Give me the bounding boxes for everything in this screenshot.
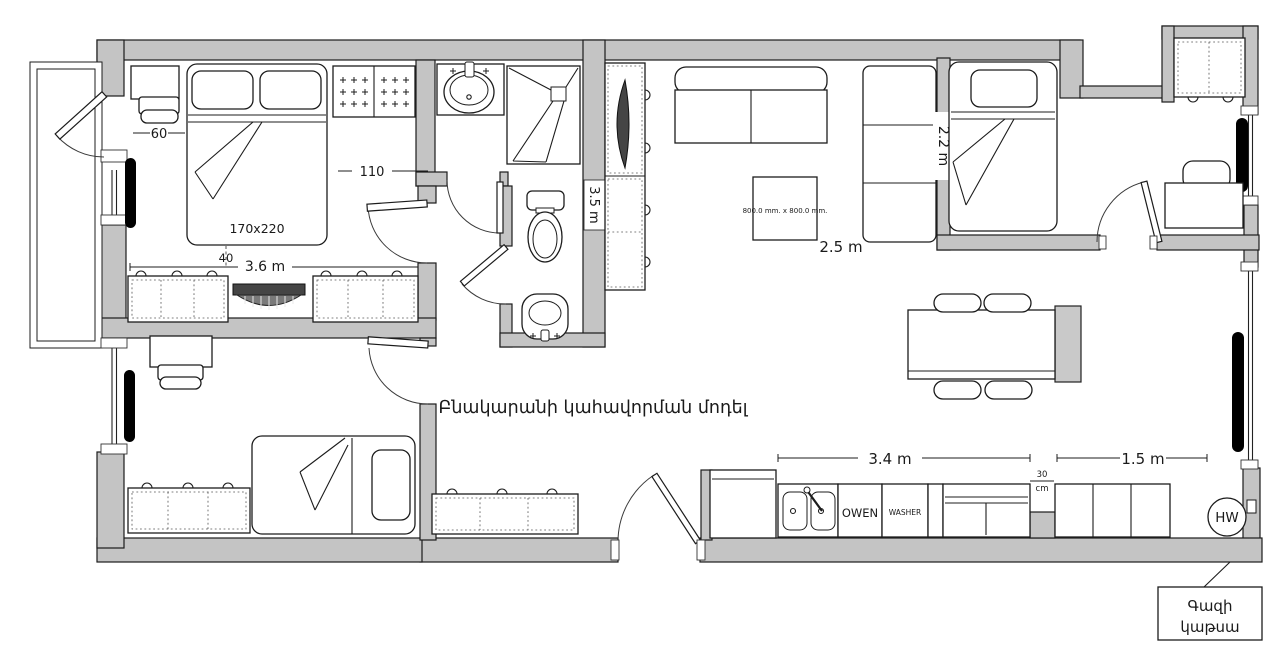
bathroom-door [447,180,503,233]
living-room: 800.0 mm. x 800.0 mm. 2.5 m 2.2 m [675,66,951,256]
oven-label: OWEN [842,506,878,520]
bedroom1-door [367,200,427,263]
wall-shelf [333,66,415,117]
wardrobe-right [313,271,418,322]
cabinet-drawers [943,484,1030,537]
dining-area [908,294,1081,399]
pillow [372,450,410,520]
chair [934,381,981,399]
chair [985,381,1032,399]
toilet [527,191,564,262]
office-door [1097,181,1162,249]
radiator-bedroom1 [125,158,136,228]
bedroom-2 [128,336,415,534]
chair [934,294,981,312]
kitchen-sink [778,484,838,537]
table-size-label: 800.0 mm. x 800.0 mm. [743,207,828,215]
single-bed [252,436,415,534]
bench [1055,306,1081,382]
dim-40-label: 40 [219,251,234,265]
shower [507,66,580,164]
wc-door [460,245,508,304]
kitchen: OWEN WASHER HW 3.4 m 1.5 m 30 cm [710,450,1256,538]
pillow [260,71,321,109]
desk [150,336,212,367]
bedroom-3 [949,62,1057,231]
dim-30-unit: cm [1036,484,1049,494]
cabinet-right [1055,484,1170,537]
dim-110-label: 110 [360,165,385,180]
dim-3-6-label: 3.6 m [245,259,285,275]
niche-wardrobe [1174,38,1245,102]
office-nook [1165,38,1245,228]
dresser [233,284,305,310]
hall-closet [605,63,650,290]
boiler-label-line2: կաթսա [1180,618,1239,636]
floorplan-canvas: 60 110 170x220 40 3.6 m [0,0,1280,670]
pillow [971,70,1037,107]
dim-2-5-label: 2.5 m [819,238,862,256]
fridge [710,470,776,538]
dim-60-label: 60 [151,127,168,142]
wardrobe-left [128,271,228,322]
desk [1165,183,1243,228]
dim-3-4-label: 3.4 m [868,450,911,468]
stool-seat [160,377,201,389]
hall-wardrobe [432,489,578,534]
page-title: Բնակարանի կահավորման մոդել [439,398,749,418]
entrance-door [611,473,705,560]
nightstand [131,66,179,99]
water-heater-label: HW [1215,510,1239,526]
wc-sink [522,294,568,341]
vanity-sink [437,62,504,115]
dim-1-5-label: 1.5 m [1121,450,1164,468]
shelving-unit [863,66,936,242]
floorplan-page: 60 110 170x220 40 3.6 m [0,0,1280,670]
washer-label: WASHER [889,508,922,517]
bathroom [437,62,580,164]
boiler-callout: Գազի կաթսա [1158,562,1262,640]
bedroom-1: 60 110 170x220 40 3.6 m [128,64,428,322]
sofa [675,67,827,143]
radiator-dining [1232,332,1244,452]
dim-30-value: 30 [1037,470,1048,480]
boiler-label-line1: Գազի [1188,597,1233,615]
radiator-bedroom2 [124,370,135,442]
wardrobe [128,483,250,533]
radiator-office [1236,118,1248,192]
chair [984,294,1031,312]
bedroom2-door [368,337,428,404]
bed-size-label: 170x220 [229,221,284,236]
pillow [192,71,253,109]
dim-3-5-label: 3.5 m [586,186,601,223]
cabinet-narrow [928,484,943,537]
dining-table [908,310,1055,379]
stool-seat [141,110,178,123]
